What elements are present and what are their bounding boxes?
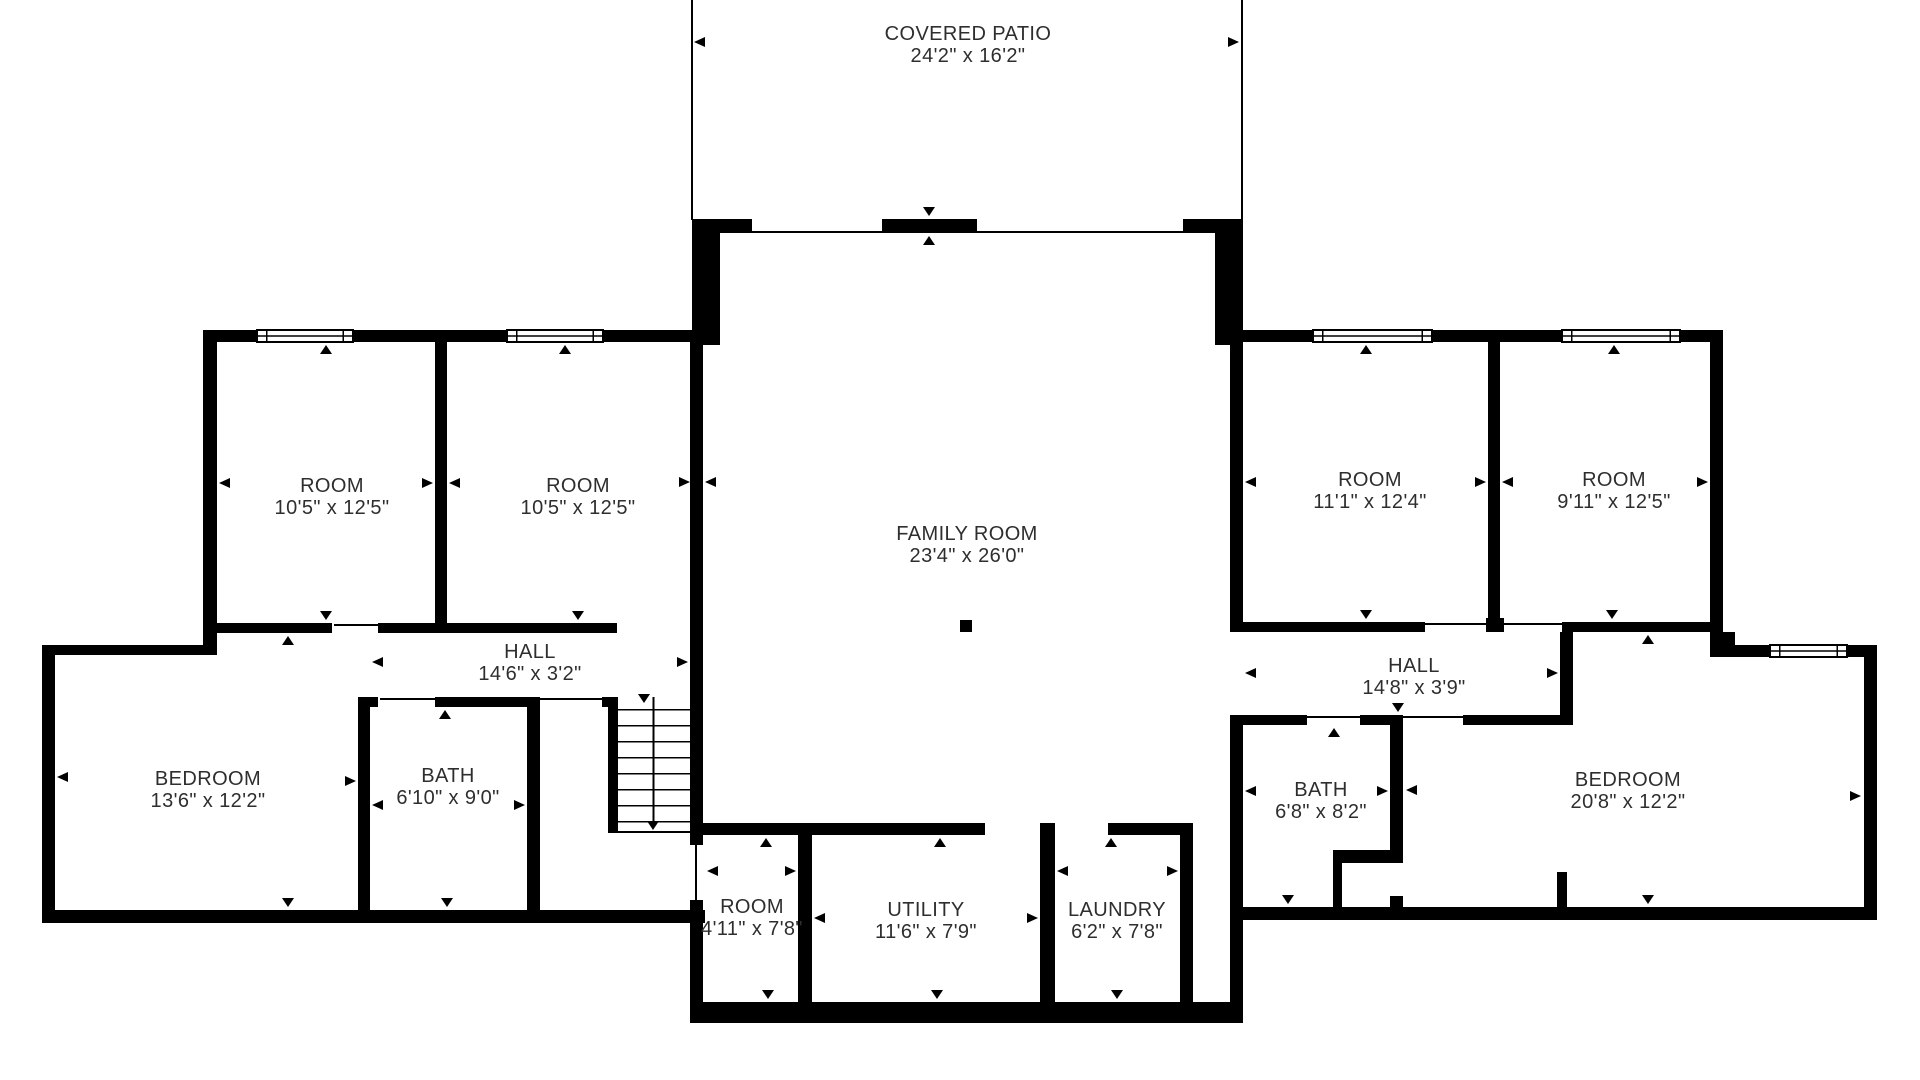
room-name: BATH [1275, 779, 1367, 801]
room-name: FAMILY ROOM [896, 523, 1037, 545]
room-label-room-right-2: ROOM9'11" x 12'5" [1557, 469, 1670, 513]
room-name: HALL [1362, 655, 1465, 677]
room-name: ROOM [1557, 469, 1670, 491]
room-name: ROOM [1313, 469, 1426, 491]
room-name: HALL [478, 641, 581, 663]
room-name: BEDROOM [1571, 769, 1686, 791]
room-dimensions: 14'8" x 3'9" [1362, 677, 1465, 699]
room-dimensions: 4'11" x 7'8" [701, 918, 803, 940]
room-dimensions: 10'5" x 12'5" [275, 497, 390, 519]
room-label-hall-right: HALL14'8" x 3'9" [1362, 655, 1465, 699]
room-label-family-room: FAMILY ROOM23'4" x 26'0" [896, 523, 1037, 567]
room-dimensions: 23'4" x 26'0" [896, 545, 1037, 567]
room-dimensions: 10'5" x 12'5" [521, 497, 636, 519]
room-labels: COVERED PATIO24'2" x 16'2"ROOM10'5" x 12… [0, 0, 1920, 1080]
room-name: UTILITY [875, 899, 977, 921]
room-label-bath-left: BATH6'10" x 9'0" [396, 765, 499, 809]
room-name: ROOM [275, 475, 390, 497]
floor-plan-canvas: COVERED PATIO24'2" x 16'2"ROOM10'5" x 12… [0, 0, 1920, 1080]
room-dimensions: 24'2" x 16'2" [885, 45, 1052, 67]
room-name: ROOM [521, 475, 636, 497]
room-label-bedroom-left: BEDROOM13'6" x 12'2" [151, 768, 266, 812]
room-label-room-right-1: ROOM11'1" x 12'4" [1313, 469, 1426, 513]
room-dimensions: 6'10" x 9'0" [396, 787, 499, 809]
room-dimensions: 14'6" x 3'2" [478, 663, 581, 685]
room-label-bath-right: BATH6'8" x 8'2" [1275, 779, 1367, 823]
room-label-room-left-1: ROOM10'5" x 12'5" [275, 475, 390, 519]
room-label-utility: UTILITY11'6" x 7'9" [875, 899, 977, 943]
room-name: COVERED PATIO [885, 23, 1052, 45]
room-name: ROOM [701, 896, 803, 918]
room-label-hall-left: HALL14'6" x 3'2" [478, 641, 581, 685]
room-label-covered-patio: COVERED PATIO24'2" x 16'2" [885, 23, 1052, 67]
room-label-laundry: LAUNDRY6'2" x 7'8" [1068, 899, 1166, 943]
room-dimensions: 11'1" x 12'4" [1313, 491, 1426, 513]
room-label-room-left-2: ROOM10'5" x 12'5" [521, 475, 636, 519]
room-label-bedroom-right: BEDROOM20'8" x 12'2" [1571, 769, 1686, 813]
room-dimensions: 11'6" x 7'9" [875, 921, 977, 943]
room-label-room-small: ROOM4'11" x 7'8" [701, 896, 803, 940]
room-name: BEDROOM [151, 768, 266, 790]
room-dimensions: 20'8" x 12'2" [1571, 791, 1686, 813]
room-dimensions: 6'8" x 8'2" [1275, 801, 1367, 823]
room-dimensions: 6'2" x 7'8" [1068, 921, 1166, 943]
room-name: BATH [396, 765, 499, 787]
room-dimensions: 9'11" x 12'5" [1557, 491, 1670, 513]
room-dimensions: 13'6" x 12'2" [151, 790, 266, 812]
room-name: LAUNDRY [1068, 899, 1166, 921]
